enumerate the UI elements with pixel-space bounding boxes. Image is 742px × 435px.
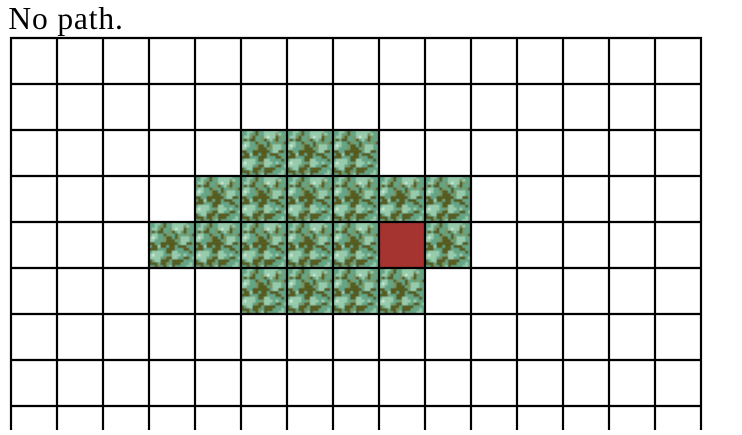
svg-text:No path.: No path. — [8, 1, 123, 36]
